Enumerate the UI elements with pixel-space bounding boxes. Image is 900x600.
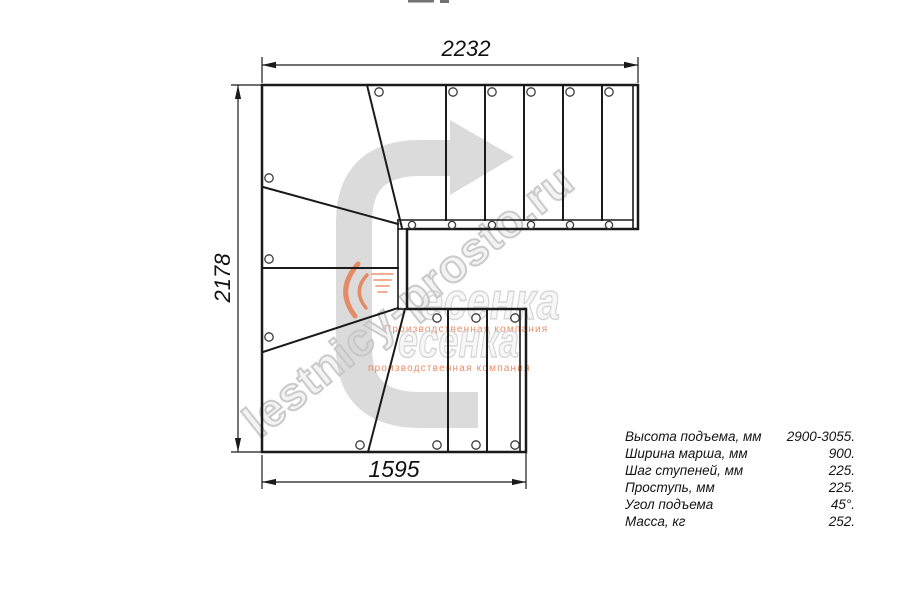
spec-row: Высота подъема, мм 2900-3055.	[625, 429, 855, 446]
spec-row: Шаг ступеней, мм 225.	[625, 463, 855, 480]
spec-value: 45°.	[831, 497, 855, 514]
spec-value: 900.	[829, 446, 855, 463]
dimension-top-label: 2232	[426, 36, 506, 62]
spec-label: Угол подъема	[625, 497, 713, 514]
spec-table: Высота подъема, мм 2900-3055. Ширина мар…	[625, 429, 855, 530]
spec-row: Ширина марша, мм 900.	[625, 446, 855, 463]
dimension-left-label: 2178	[210, 238, 236, 318]
spec-label: Ширина марша, мм	[625, 446, 748, 463]
staircase-drawing-page: есенка Производственная компания есенка …	[0, 0, 900, 600]
spec-label: Проступь, мм	[625, 480, 715, 497]
cropped-top-remnant	[408, 0, 449, 3]
spec-value: 225.	[829, 480, 855, 497]
spec-row: Проступь, мм 225.	[625, 480, 855, 497]
spec-label: Шаг ступеней, мм	[625, 463, 743, 480]
spec-value: 2900-3055.	[787, 429, 855, 446]
spec-value: 252.	[829, 514, 855, 531]
dimension-bottom-label: 1595	[354, 456, 434, 483]
spec-label: Высота подъема, мм	[625, 429, 761, 446]
spec-value: 225.	[829, 463, 855, 480]
spec-row: Угол подъема 45°.	[625, 497, 855, 514]
watermark-logo-tagline-2: производственная компания	[368, 363, 531, 374]
spec-row: Масса, кг 252.	[625, 514, 855, 531]
spec-label: Масса, кг	[625, 514, 685, 531]
